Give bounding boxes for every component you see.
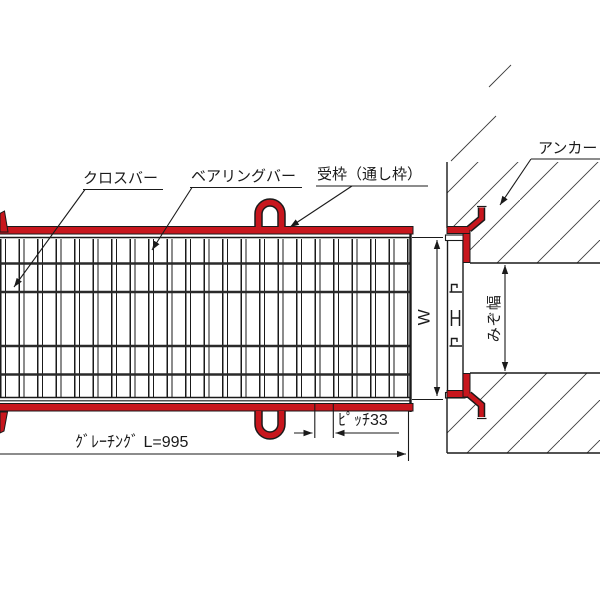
groove-width-label: みぞ幅 xyxy=(487,286,504,350)
bearing-bar-label: ベアリングバー xyxy=(191,169,296,186)
grating-technical-drawing: クロスバー ベアリングバー 受枠（通し枠） アンカー ﾋﾟｯﾁ33 ｸﾞﾚｰﾁﾝ… xyxy=(0,0,600,600)
crossbar-label: クロスバー xyxy=(83,171,158,188)
dimension-lines xyxy=(0,238,505,462)
frame-plan-bands xyxy=(0,211,413,433)
frame-left-stub xyxy=(0,412,8,433)
leader-bearing-bar xyxy=(152,188,192,251)
drawing-linework xyxy=(0,0,600,600)
plan-view-lines xyxy=(0,226,411,412)
frame-left-stub xyxy=(0,211,8,232)
grating-section xyxy=(446,235,466,398)
pitch-label: ﾋﾟｯﾁ33 xyxy=(338,412,388,430)
width-dim-label: W xyxy=(416,302,435,332)
length-label: ｸﾞﾚｰﾁﾝｸﾞ L=995 xyxy=(75,434,188,452)
frame-label: 受枠（通し枠） xyxy=(317,167,422,184)
anchor-label: アンカー xyxy=(538,141,597,158)
leader-frame xyxy=(290,186,352,227)
